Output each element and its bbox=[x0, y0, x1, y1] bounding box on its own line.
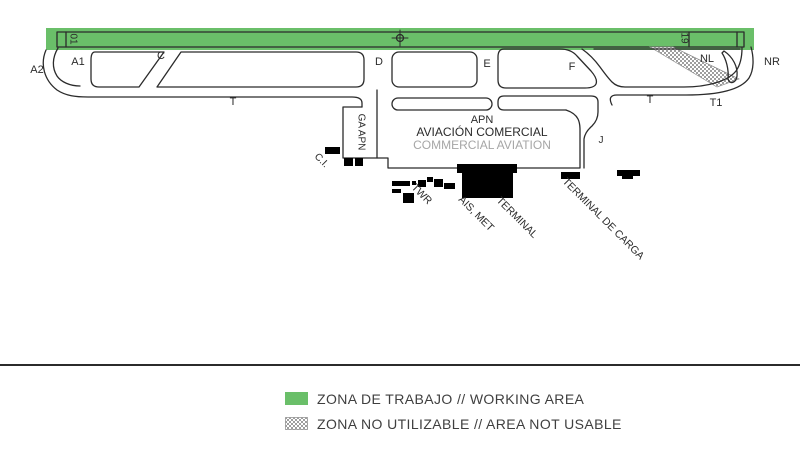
airport-works-diagram-page: 01 19 A2 A1 C D E F NL NR T T T1 J APN A… bbox=[0, 0, 800, 454]
taxiway-a2-label: A2 bbox=[30, 64, 43, 76]
taxiway-a1-label: A1 bbox=[71, 56, 84, 68]
ga-apron-label: GA APN bbox=[356, 114, 367, 151]
apron-aviacion-comercial-label: AVIACIÓN COMERCIAL bbox=[416, 124, 547, 139]
terminal-label: TERMINAL bbox=[494, 195, 540, 241]
buildings bbox=[325, 147, 640, 203]
ais-met-label: AIS, MET bbox=[456, 194, 497, 235]
terminal-building bbox=[457, 164, 517, 198]
taxiway-t-west-label: T bbox=[230, 96, 237, 108]
working-area-swatch bbox=[285, 392, 308, 405]
taxiway-nl-label: NL bbox=[700, 53, 714, 65]
airport-diagram: 01 19 A2 A1 C D E F NL NR T T T1 J APN A… bbox=[0, 0, 800, 360]
fire-station-building bbox=[325, 147, 340, 154]
taxiway-t-east-label: T bbox=[647, 94, 654, 106]
fire-station-label: C.I. bbox=[312, 151, 331, 170]
area-not-usable-strip bbox=[650, 47, 739, 87]
legend-row-working-area: ZONA DE TRABAJO // WORKING AREA bbox=[285, 386, 622, 411]
tower-building bbox=[403, 193, 414, 203]
taxiway-t1-label: T1 bbox=[710, 97, 723, 109]
apron-commercial-aviation-label: COMMERCIAL AVIATION bbox=[413, 138, 551, 152]
taxiway-lines bbox=[43, 47, 753, 168]
taxiway-f-label: F bbox=[569, 61, 576, 73]
taxiway-d-label: D bbox=[375, 56, 383, 68]
diagram-labels: 01 19 A2 A1 C D E F NL NR T T T1 J APN A… bbox=[30, 32, 780, 262]
threshold-left-label: 01 bbox=[68, 33, 79, 45]
taxiway-nr-label: NR bbox=[764, 56, 780, 68]
taxiway-j-label: J bbox=[599, 135, 604, 146]
legend-row-not-usable: ZONA NO UTILIZABLE // AREA NOT USABLE bbox=[285, 411, 622, 436]
not-usable-swatch bbox=[285, 417, 308, 430]
not-usable-label: ZONA NO UTILIZABLE // AREA NOT USABLE bbox=[317, 416, 622, 432]
threshold-right-label: 19 bbox=[679, 32, 690, 44]
legend: ZONA DE TRABAJO // WORKING AREA ZONA NO … bbox=[285, 386, 622, 436]
working-area-label: ZONA DE TRABAJO // WORKING AREA bbox=[317, 391, 584, 407]
taxiway-e-label: E bbox=[483, 58, 490, 70]
cargo-terminal-label: TERMINAL DE CARGA bbox=[560, 176, 647, 263]
taxiway-c-label: C bbox=[157, 50, 165, 62]
divider-line bbox=[0, 364, 800, 366]
